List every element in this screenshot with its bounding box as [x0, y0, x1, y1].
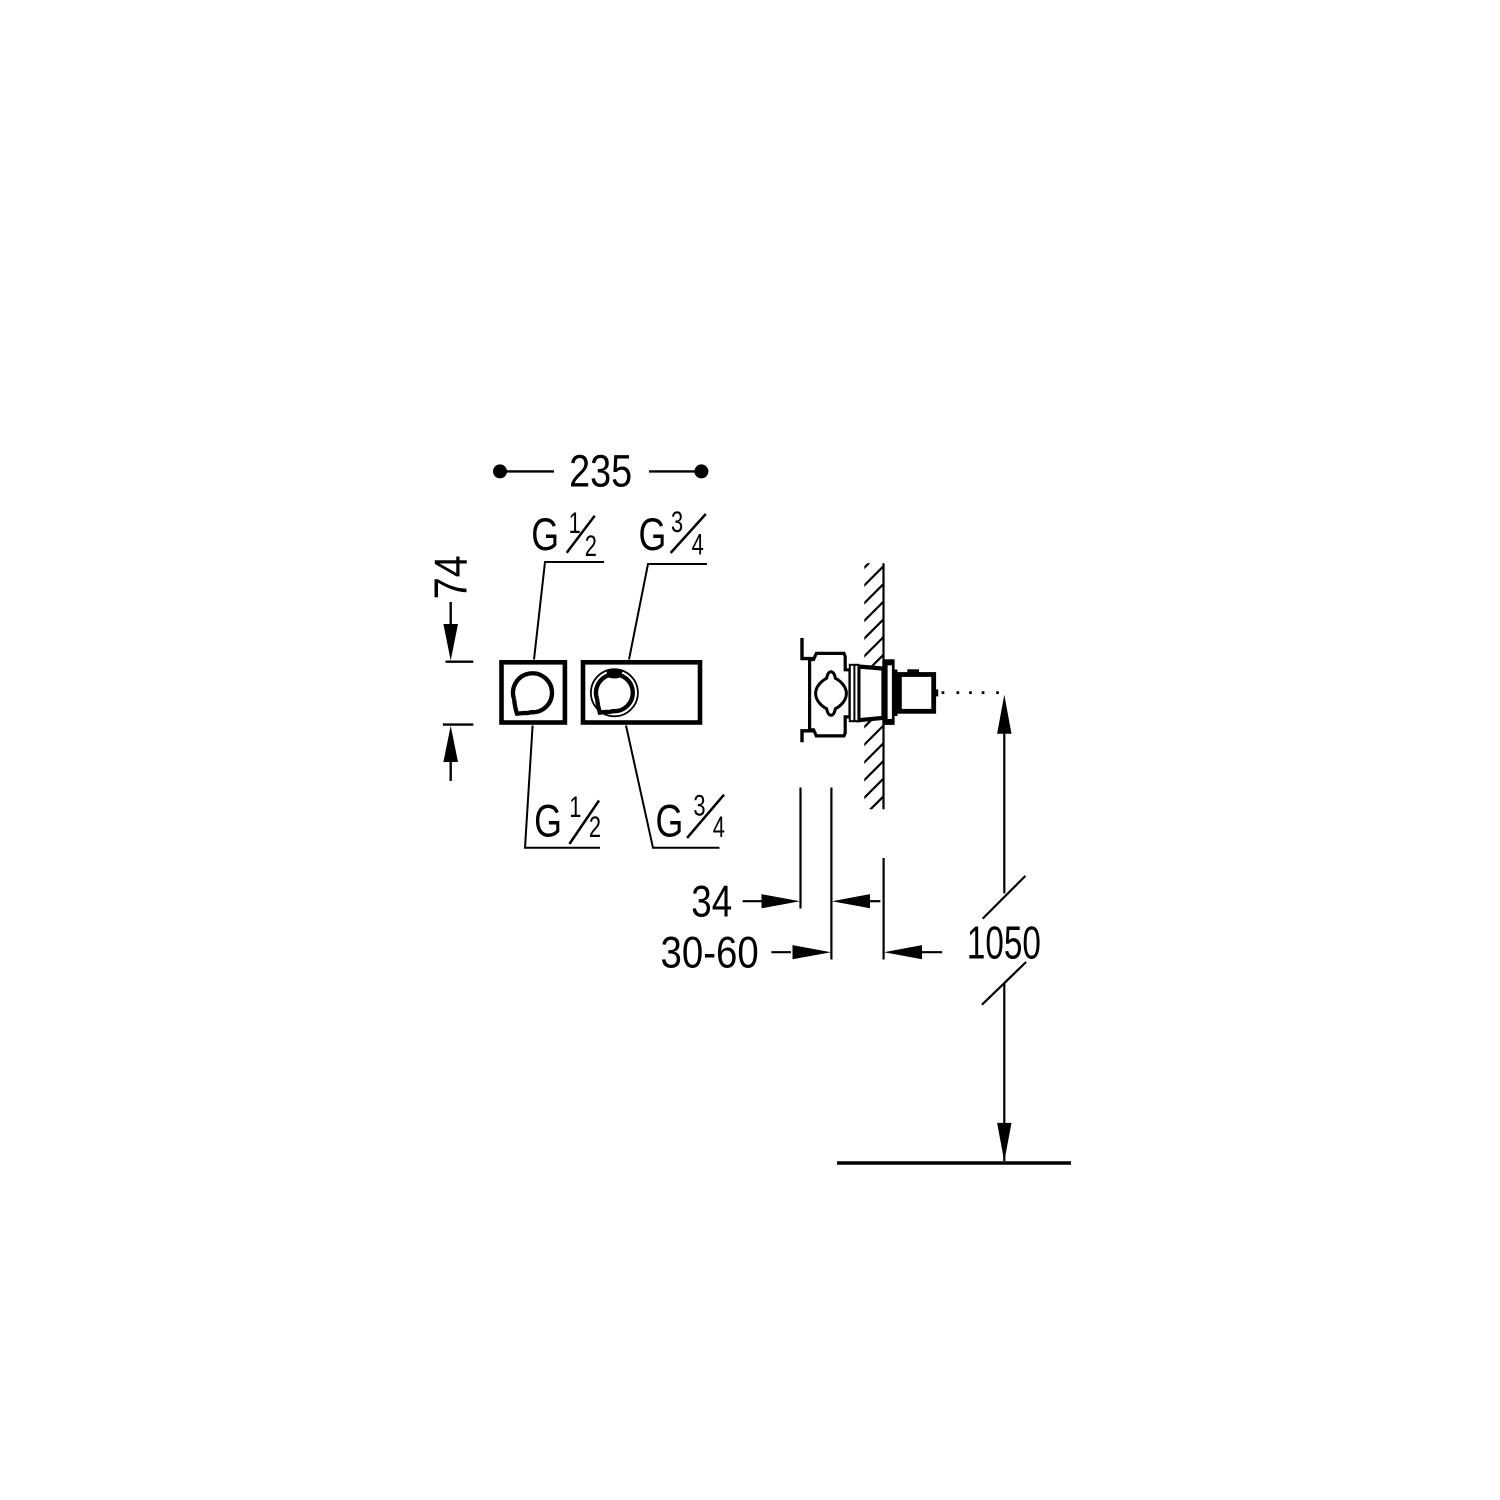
svg-text:4: 4 [692, 530, 704, 562]
svg-text:34: 34 [691, 876, 732, 926]
svg-text:4: 4 [713, 812, 725, 844]
svg-text:G: G [531, 509, 559, 560]
svg-text:74: 74 [425, 555, 477, 599]
svg-text:1: 1 [569, 792, 581, 824]
svg-text:2: 2 [589, 812, 601, 844]
svg-text:2: 2 [585, 531, 597, 563]
svg-text:1050: 1050 [967, 916, 1041, 969]
svg-text:G: G [656, 795, 684, 846]
svg-text:235: 235 [569, 445, 632, 496]
svg-text:3: 3 [671, 507, 683, 539]
svg-text:G: G [639, 509, 667, 560]
svg-text:30-60: 30-60 [661, 927, 759, 978]
svg-text:G: G [534, 795, 562, 846]
